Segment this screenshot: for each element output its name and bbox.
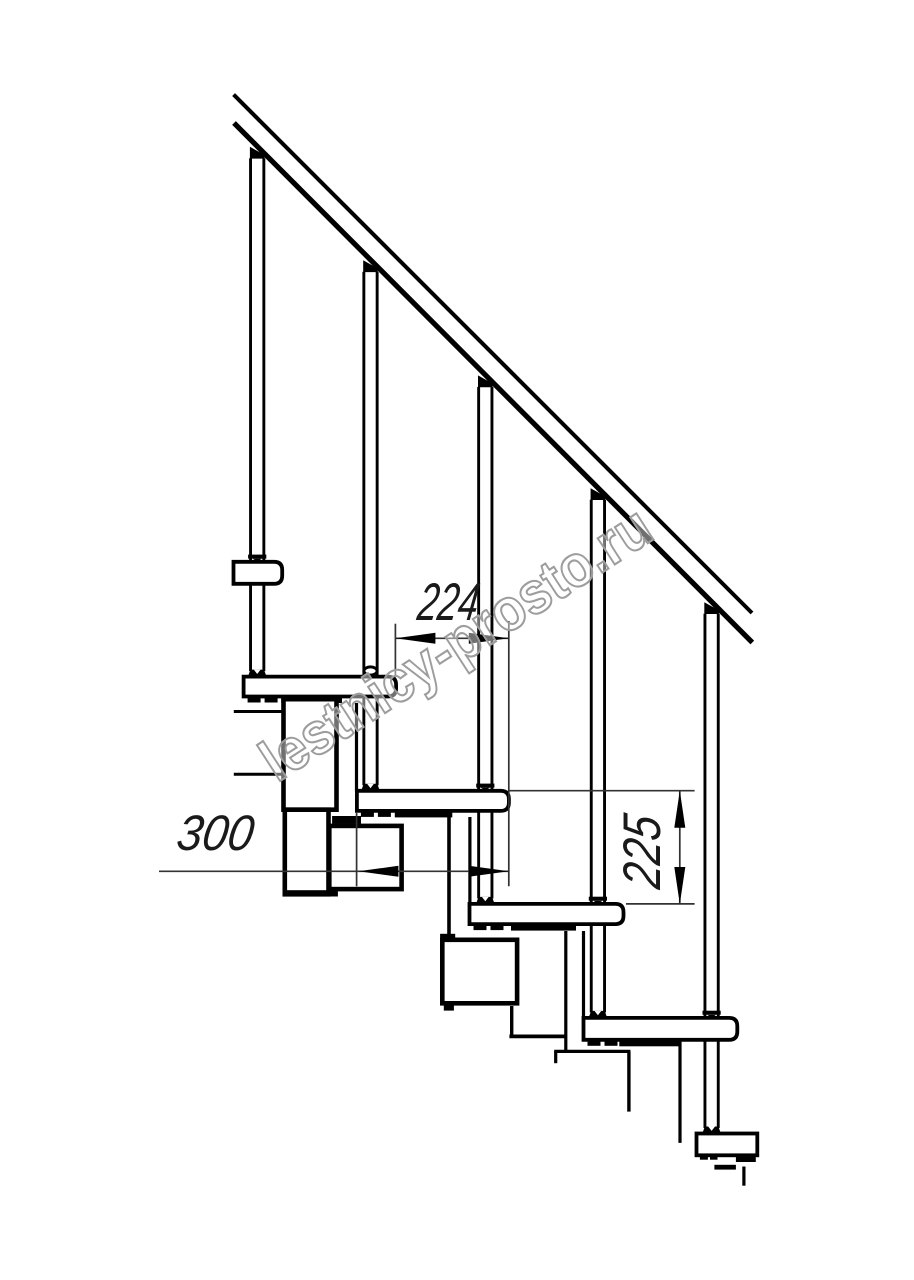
svg-text:225: 225 (613, 810, 672, 892)
svg-text:300: 300 (173, 804, 258, 861)
